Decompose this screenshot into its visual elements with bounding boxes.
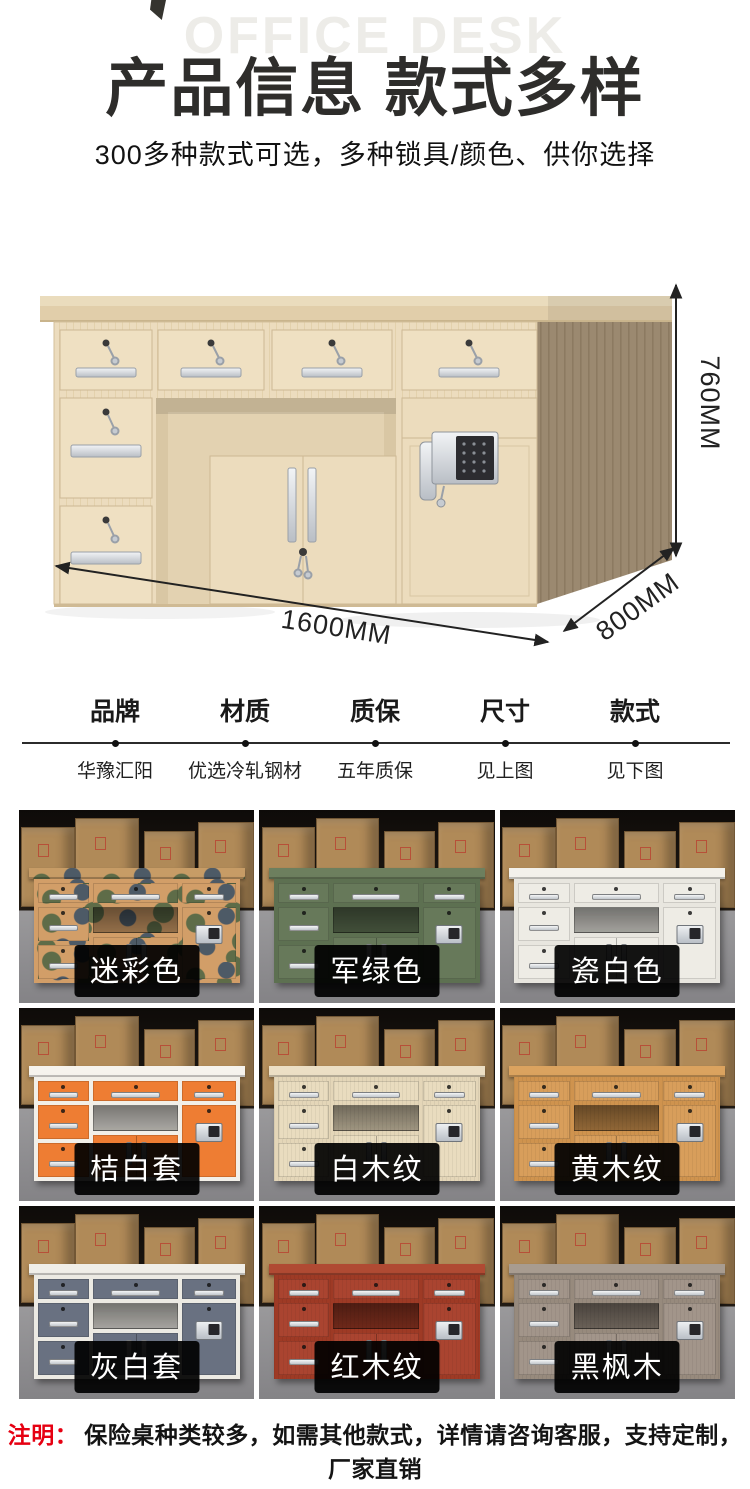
drawer-handle bbox=[434, 1290, 465, 1296]
drawer bbox=[278, 1105, 329, 1139]
drawer bbox=[278, 1279, 329, 1299]
knee-space bbox=[333, 1105, 418, 1131]
drawer bbox=[182, 883, 235, 903]
drawer-handle bbox=[289, 1092, 319, 1098]
keypad-lock-icon bbox=[676, 925, 703, 944]
drawer-handle bbox=[49, 1290, 79, 1296]
footnote-text: 保险桌种类较多，如需其他款式，详情请咨询客服，支持定制，厂家直销 bbox=[84, 1422, 742, 1482]
variant-label: 迷彩色 bbox=[74, 945, 199, 997]
desk-top bbox=[269, 1066, 485, 1077]
drawer bbox=[278, 1081, 329, 1101]
drawer-handle bbox=[529, 925, 559, 931]
variant-label: 黑枫木 bbox=[555, 1341, 680, 1393]
drawer bbox=[518, 1105, 569, 1139]
variant-label: 瓷白色 bbox=[555, 945, 680, 997]
spec-value-warranty: 五年质保 bbox=[310, 756, 440, 783]
knee-space bbox=[333, 1303, 418, 1329]
spec-divider bbox=[22, 742, 730, 744]
keypad-lock-icon bbox=[195, 925, 222, 944]
drawer-handle bbox=[194, 894, 225, 900]
drawer bbox=[663, 883, 716, 903]
gallery-photo: 桔白套 bbox=[19, 1008, 254, 1201]
drawer-handle bbox=[49, 1123, 79, 1129]
drawer bbox=[574, 883, 659, 903]
drawer bbox=[38, 1105, 89, 1139]
drawer-handle bbox=[529, 1123, 559, 1129]
gallery-photo: 黑枫木 bbox=[500, 1206, 735, 1399]
keypad-lock-icon bbox=[436, 925, 463, 944]
drawer bbox=[574, 1279, 659, 1299]
gallery-photo: 军绿色 bbox=[259, 810, 494, 1003]
drawer bbox=[38, 1279, 89, 1299]
keypad-lock-icon bbox=[436, 1321, 463, 1340]
drawer-handle bbox=[111, 894, 160, 900]
spec-header-material: 材质 bbox=[180, 692, 310, 728]
knee-space bbox=[574, 1105, 659, 1131]
spec-strip: 品牌 材质 质保 尺寸 款式 华豫汇阳 优选冷轧钢材 五年质保 见上图 见下图 bbox=[0, 692, 750, 783]
drawer bbox=[663, 1279, 716, 1299]
drawer bbox=[93, 1081, 178, 1101]
gallery-photo: 迷彩色 bbox=[19, 810, 254, 1003]
drawer bbox=[423, 1279, 476, 1299]
desk-top bbox=[269, 1264, 485, 1275]
dim-width-label: 1600MM bbox=[279, 604, 393, 651]
drawer-handle bbox=[592, 1290, 641, 1296]
top-drawers bbox=[60, 330, 537, 390]
drawer bbox=[423, 1081, 476, 1101]
drawer-handle bbox=[49, 925, 79, 931]
drawer-handle bbox=[49, 1092, 79, 1098]
knee-space bbox=[93, 1303, 178, 1329]
drawer-handle bbox=[49, 1321, 79, 1327]
dim-height-label: 760MM bbox=[695, 355, 725, 450]
keypad-lock-icon bbox=[195, 1123, 222, 1142]
drawer bbox=[182, 1081, 235, 1101]
drawer-handle bbox=[194, 1290, 225, 1296]
right-pedestal bbox=[402, 398, 537, 604]
drawer bbox=[278, 1303, 329, 1337]
drawer bbox=[518, 883, 569, 903]
spec-header-warranty: 质保 bbox=[310, 692, 440, 728]
footnote: 注明：保险桌种类较多，如需其他款式，详情请咨询客服，支持定制，厂家直销 bbox=[0, 1416, 750, 1484]
desk-illustration: 760MM 1600MM 800MM bbox=[0, 200, 750, 680]
drawer-handle bbox=[674, 1290, 705, 1296]
drawer bbox=[38, 907, 89, 941]
drawer bbox=[333, 1081, 418, 1101]
gallery-photo: 白木纹 bbox=[259, 1008, 494, 1201]
drawer bbox=[518, 1303, 569, 1337]
spec-value-brand: 华豫汇阳 bbox=[50, 756, 180, 783]
drawer bbox=[278, 883, 329, 903]
drawer bbox=[93, 1279, 178, 1299]
drawer-handle bbox=[434, 1092, 465, 1098]
drawer-handle bbox=[289, 1290, 319, 1296]
drawer bbox=[518, 1279, 569, 1299]
drawer-handle bbox=[434, 894, 465, 900]
drawer-handle bbox=[529, 1092, 559, 1098]
page-subtitle: 300多种款式可选，多种锁具/颜色、供你选择 bbox=[0, 133, 750, 172]
drawer bbox=[333, 883, 418, 903]
drawer-handle bbox=[352, 1290, 401, 1296]
middle-cabinet bbox=[156, 398, 396, 604]
desk-top bbox=[509, 868, 725, 879]
drawer bbox=[182, 1279, 235, 1299]
drawer-handle bbox=[674, 894, 705, 900]
variant-label: 红木纹 bbox=[314, 1341, 439, 1393]
gallery-photo: 瓷白色 bbox=[500, 810, 735, 1003]
spec-value-size: 见上图 bbox=[440, 756, 570, 783]
variant-label: 白木纹 bbox=[314, 1143, 439, 1195]
gallery-photo: 黄木纹 bbox=[500, 1008, 735, 1201]
drawer bbox=[518, 907, 569, 941]
variant-label: 灰白套 bbox=[74, 1341, 199, 1393]
desk-side-panel bbox=[537, 322, 672, 604]
drawer bbox=[574, 1081, 659, 1101]
spec-value-style: 见下图 bbox=[570, 756, 700, 783]
drawer bbox=[93, 883, 178, 903]
desk-top bbox=[509, 1264, 725, 1275]
hero-product-image: 760MM 1600MM 800MM bbox=[0, 200, 750, 680]
variant-label: 黄木纹 bbox=[555, 1143, 680, 1195]
knee-space bbox=[574, 907, 659, 933]
drawer bbox=[278, 907, 329, 941]
desk-top bbox=[29, 1066, 245, 1077]
page-title: 产品信息 款式多样 bbox=[0, 38, 750, 129]
drawer bbox=[38, 883, 89, 903]
spec-header-brand: 品牌 bbox=[50, 692, 180, 728]
desk-top bbox=[40, 296, 672, 322]
drawer bbox=[423, 883, 476, 903]
knee-space bbox=[333, 907, 418, 933]
drawer-handle bbox=[111, 1092, 160, 1098]
knee-space bbox=[93, 1105, 178, 1131]
drawer-handle bbox=[49, 894, 79, 900]
drawer-handle bbox=[289, 1123, 319, 1129]
keypad-lock-icon bbox=[676, 1321, 703, 1340]
spec-values: 华豫汇阳 优选冷轧钢材 五年质保 见上图 见下图 bbox=[50, 756, 700, 783]
drawer bbox=[663, 1081, 716, 1101]
drawer-handle bbox=[289, 894, 319, 900]
drawer-handle bbox=[194, 1092, 225, 1098]
spec-headers: 品牌 材质 质保 尺寸 款式 bbox=[50, 692, 700, 728]
drawer-handle bbox=[529, 1321, 559, 1327]
desk-top bbox=[29, 1264, 245, 1275]
desk-top bbox=[269, 868, 485, 879]
drawer bbox=[38, 1303, 89, 1337]
keypad-lock-icon bbox=[436, 1123, 463, 1142]
drawer-handle bbox=[674, 1092, 705, 1098]
variant-gallery: 迷彩色 bbox=[19, 810, 735, 1399]
drawer-handle bbox=[592, 1092, 641, 1098]
drawer-handle bbox=[289, 925, 319, 931]
spec-header-style: 款式 bbox=[570, 692, 700, 728]
product-info-page: OFFICE DESK 产品信息 款式多样 300多种款式可选，多种锁具/颜色、… bbox=[0, 0, 750, 1489]
drawer-handle bbox=[289, 1321, 319, 1327]
variant-label: 桔白套 bbox=[74, 1143, 199, 1195]
desk-front bbox=[54, 322, 537, 607]
drawer-handle bbox=[529, 894, 559, 900]
drawer-handle bbox=[592, 894, 641, 900]
drawer-handle bbox=[111, 1290, 160, 1296]
keypad-lock-icon bbox=[195, 1321, 222, 1340]
spec-header-size: 尺寸 bbox=[440, 692, 570, 728]
desk-top bbox=[29, 868, 245, 879]
spec-value-material: 优选冷轧钢材 bbox=[180, 756, 310, 783]
footnote-prefix: 注明： bbox=[8, 1422, 79, 1448]
drawer-handle bbox=[352, 894, 401, 900]
drawer-handle bbox=[529, 1290, 559, 1296]
drawer bbox=[333, 1279, 418, 1299]
drawer-handle bbox=[352, 1092, 401, 1098]
knee-space bbox=[574, 1303, 659, 1329]
gallery-photo: 灰白套 bbox=[19, 1206, 254, 1399]
drawer bbox=[38, 1081, 89, 1101]
knee-space bbox=[93, 907, 178, 933]
keypad-lock-icon bbox=[676, 1123, 703, 1142]
desk-top bbox=[509, 1066, 725, 1077]
drawer bbox=[518, 1081, 569, 1101]
variant-label: 军绿色 bbox=[314, 945, 439, 997]
gallery-photo: 红木纹 bbox=[259, 1206, 494, 1399]
